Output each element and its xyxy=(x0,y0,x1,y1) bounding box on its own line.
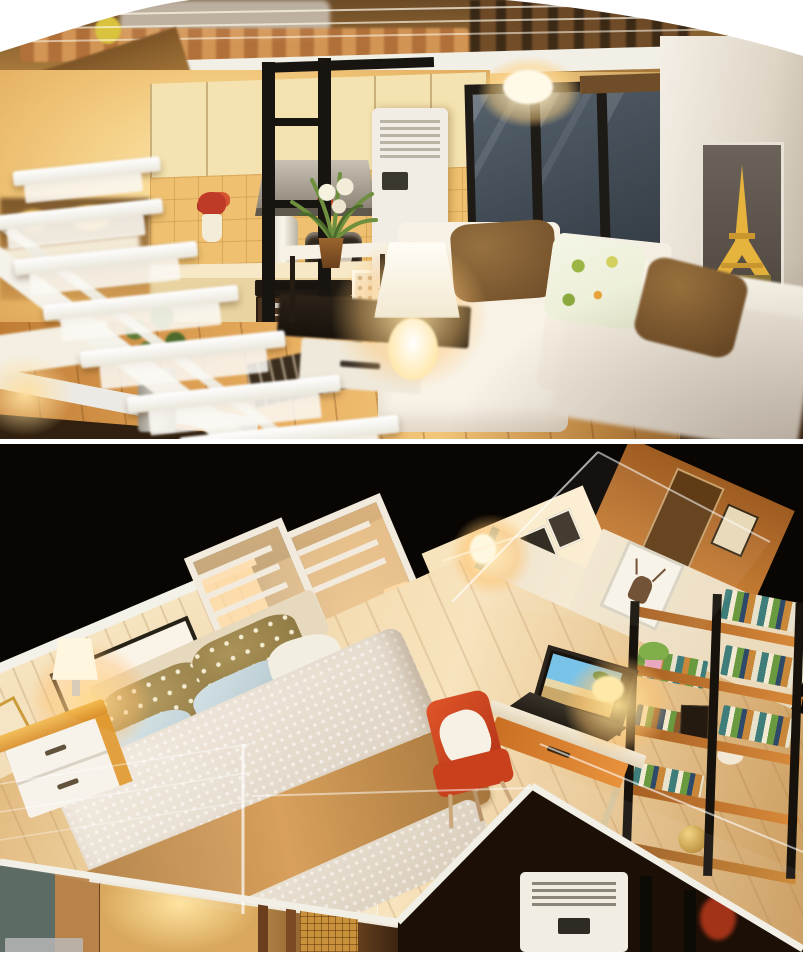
photo-living-room xyxy=(0,0,803,439)
ac-control-panel xyxy=(382,172,408,190)
photo-top-arc xyxy=(0,0,803,70)
photo-vignette xyxy=(403,239,803,439)
ceiling-light xyxy=(503,70,553,104)
staircase xyxy=(0,118,397,439)
acrylic-railings xyxy=(0,444,803,952)
product-photo-collage xyxy=(0,0,803,959)
ac-vent-grill xyxy=(380,120,440,162)
bottom-margin xyxy=(0,952,803,959)
photo-bedroom-loft xyxy=(0,444,803,952)
watermark-box xyxy=(5,938,83,952)
